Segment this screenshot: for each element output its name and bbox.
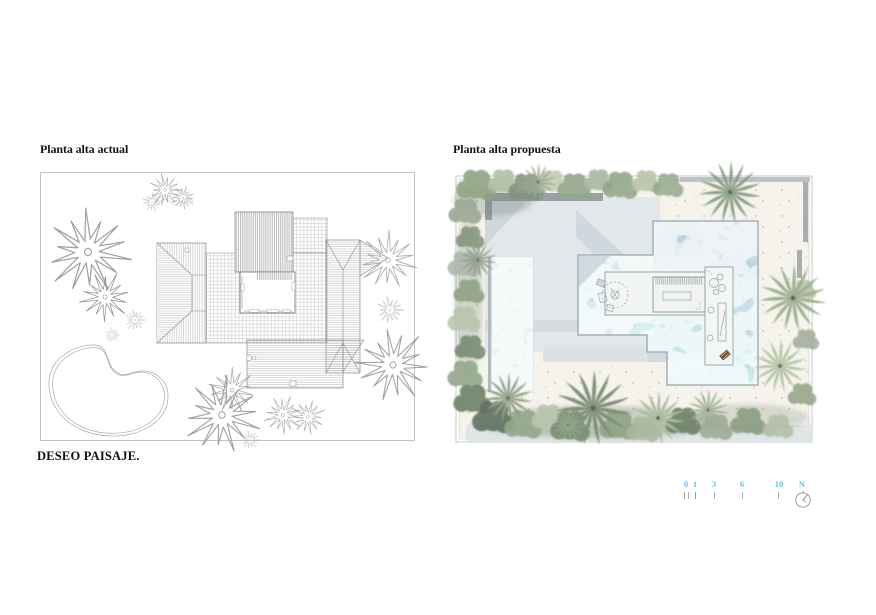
scale-label-1: 1 [693, 479, 697, 489]
lap-pool [492, 257, 533, 392]
brand-label: DESEO PAISAJE. [37, 449, 140, 464]
scale-bar: 0 1 3 6 10 N [678, 479, 828, 511]
courtyard-opening [653, 277, 705, 312]
scale-tick [714, 492, 715, 499]
scale-tick [742, 492, 743, 499]
scale-label-3: 3 [712, 479, 716, 489]
kidney-pool [49, 345, 168, 436]
right-plan-title: Planta alta propuesta [453, 143, 561, 155]
left-plan-content [41, 173, 446, 462]
left-plan-drawing [36, 166, 426, 458]
right-plan-drawing [448, 170, 824, 456]
scale-label-10: 10 [775, 479, 784, 489]
pool-walkway [705, 267, 733, 365]
scale-tick [688, 492, 689, 499]
presentation-sheet: Planta alta actual Planta alta propuesta [0, 0, 876, 615]
scale-label-6: 6 [740, 479, 744, 489]
scale-tick [684, 492, 685, 499]
scale-tick [695, 492, 696, 499]
courtyard [240, 272, 295, 313]
scale-tick [778, 492, 779, 499]
scale-label-0: 0 [684, 479, 688, 489]
north-compass-icon [793, 490, 813, 510]
north-label: N [799, 479, 805, 489]
left-plan-title: Planta alta actual [40, 143, 128, 155]
